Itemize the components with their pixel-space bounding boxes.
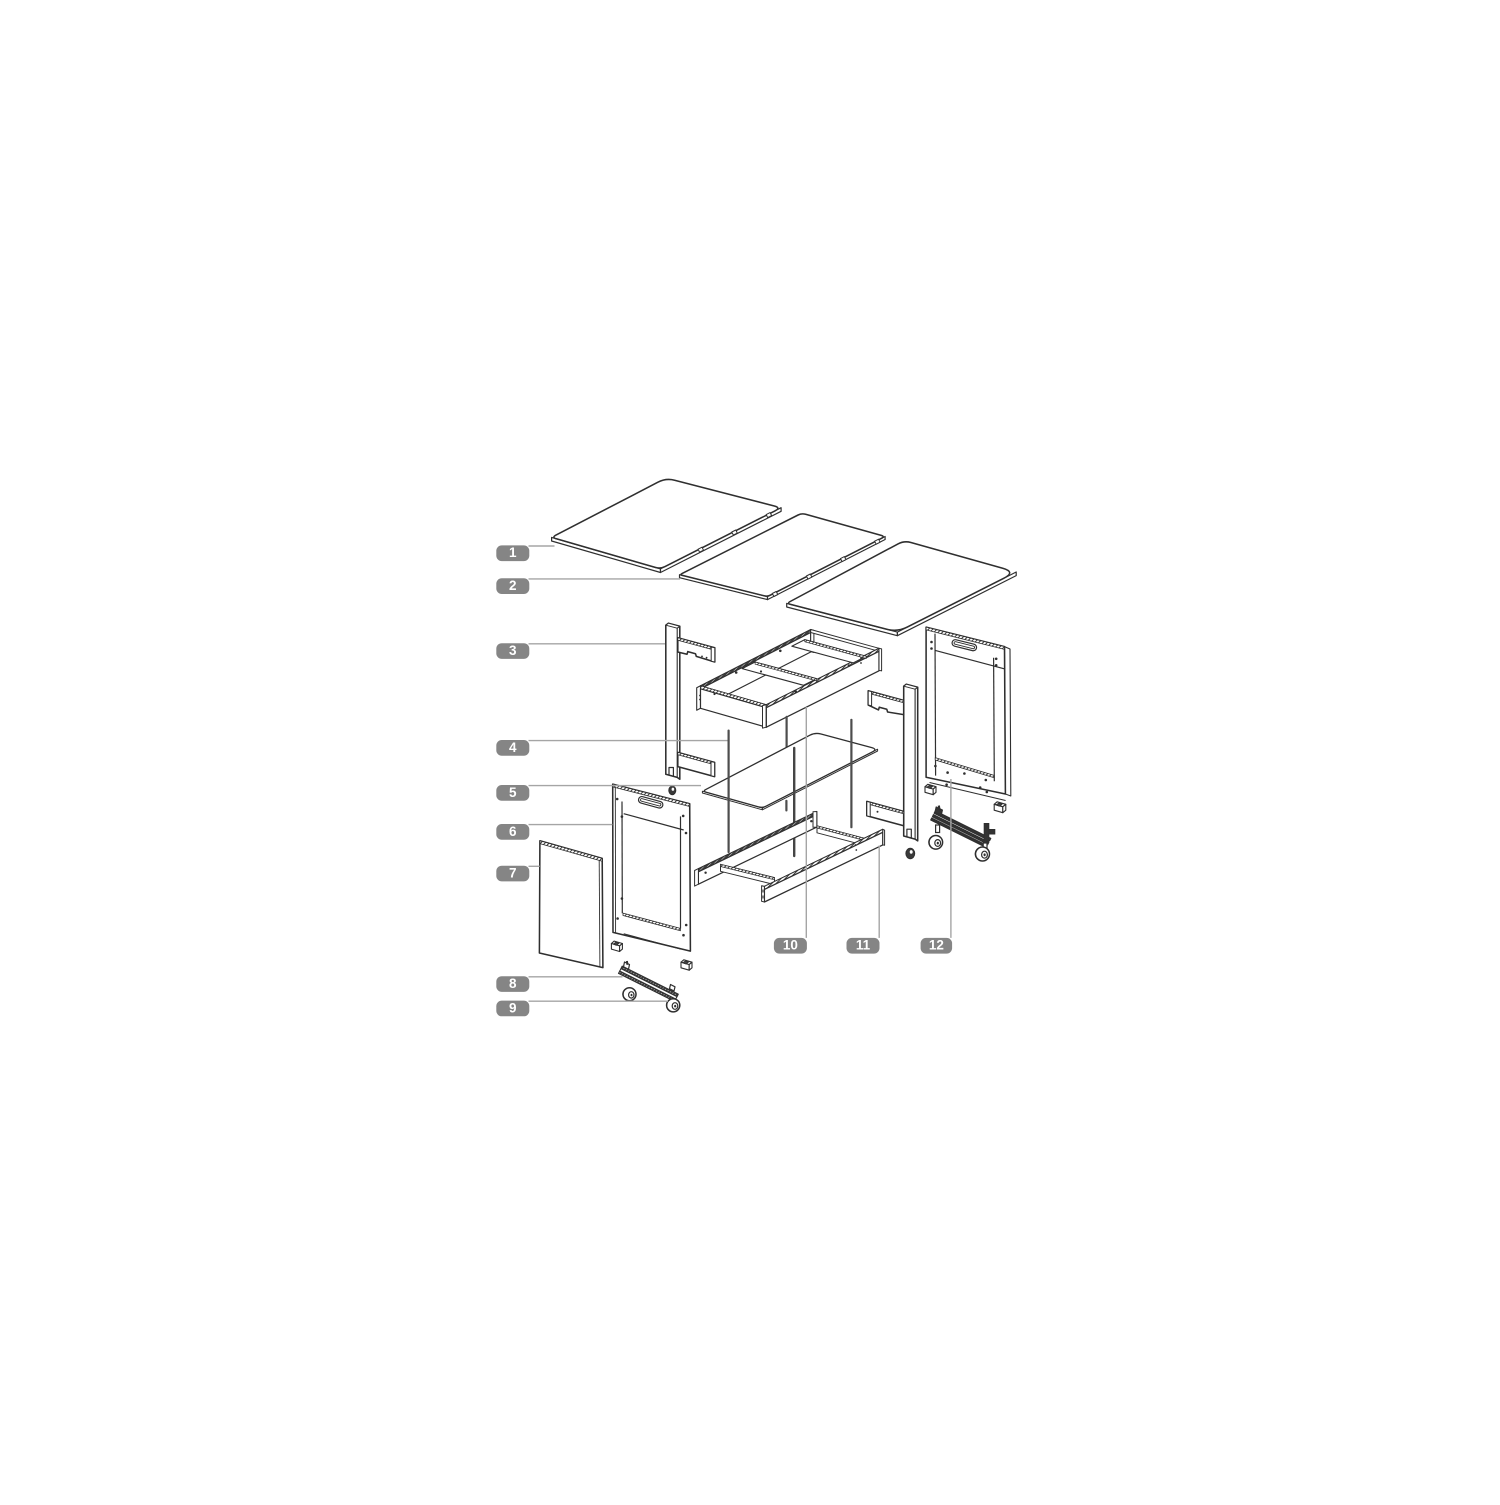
svg-text:5: 5 xyxy=(509,785,517,800)
svg-text:6: 6 xyxy=(509,824,517,839)
svg-text:7: 7 xyxy=(509,866,517,881)
svg-text:3: 3 xyxy=(509,643,517,658)
svg-text:4: 4 xyxy=(509,740,517,755)
svg-text:8: 8 xyxy=(509,976,517,991)
svg-text:10: 10 xyxy=(783,938,798,953)
svg-text:11: 11 xyxy=(856,938,871,953)
svg-text:9: 9 xyxy=(509,1000,517,1015)
svg-text:12: 12 xyxy=(929,938,944,953)
svg-text:2: 2 xyxy=(509,578,517,593)
svg-text:1: 1 xyxy=(509,545,517,560)
